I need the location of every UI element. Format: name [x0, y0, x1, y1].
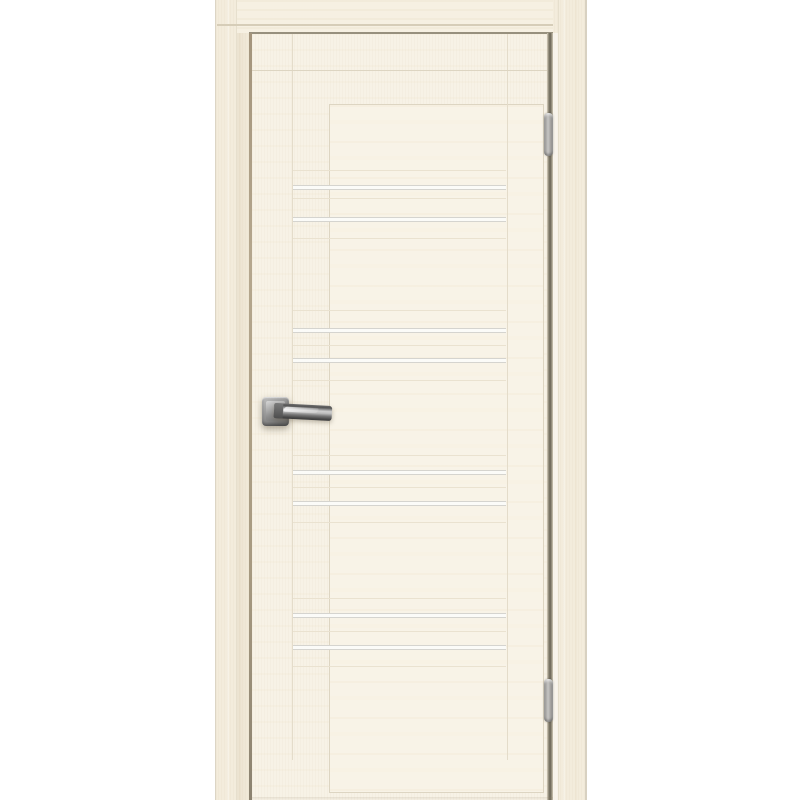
- hinge-top: [544, 113, 553, 156]
- door-inner-panel: [329, 104, 544, 793]
- frame-left-outer-edge: [215, 0, 216, 800]
- panel-seam-line: [293, 310, 506, 311]
- glass-stripe-insert: [293, 185, 506, 190]
- glass-stripe-insert: [293, 645, 506, 650]
- panel-seam-line: [293, 522, 506, 523]
- frame-left-reveal: [237, 33, 249, 800]
- leaf-top-rail-joint: [252, 70, 547, 71]
- panel-seam-line: [293, 198, 506, 199]
- glass-stripe-insert: [293, 358, 506, 363]
- panel-seam-line: [293, 666, 506, 667]
- door-gap-left: [249, 33, 252, 800]
- door-product-photo: [215, 0, 587, 800]
- frame-right-joint-line: [558, 0, 559, 800]
- panel-seam-line: [293, 380, 506, 381]
- frame-header-joint-line: [217, 24, 553, 26]
- panel-seam-line: [293, 238, 506, 239]
- glass-stripe-insert: [293, 501, 506, 506]
- door-gap-top: [249, 32, 553, 34]
- handle-lever: [274, 403, 333, 421]
- panel-seam-line: [293, 598, 506, 599]
- hinge-bottom: [544, 679, 553, 722]
- frame-right-outer-edge: [585, 0, 587, 800]
- panel-seam-line: [293, 455, 506, 456]
- panel-seam-line: [293, 170, 506, 171]
- door-frame-header: [236, 0, 553, 33]
- leaf-right-stile-joint: [507, 33, 508, 760]
- door-handle: [260, 394, 335, 430]
- glass-stripe-insert: [293, 613, 506, 618]
- panel-seam-line: [293, 487, 506, 488]
- glass-stripe-insert: [293, 217, 506, 222]
- panel-seam-line: [293, 631, 506, 632]
- panel-seam-line: [293, 345, 506, 346]
- glass-stripe-insert: [293, 470, 506, 475]
- glass-stripe-insert: [293, 328, 506, 333]
